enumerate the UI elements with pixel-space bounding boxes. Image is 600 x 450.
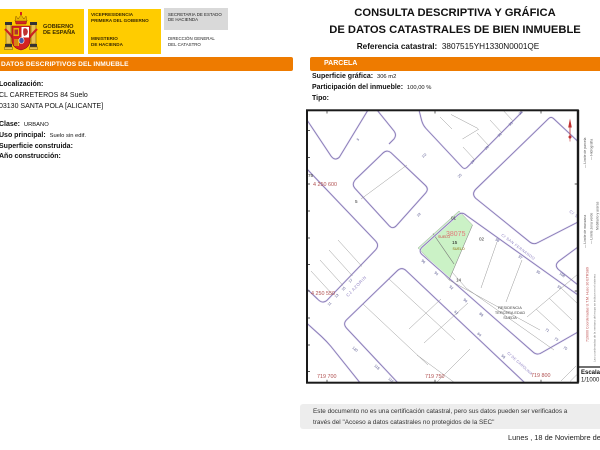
svg-text:— Límite de parcela: — Límite de parcela <box>583 138 587 168</box>
svg-text:1/2: 1/2 <box>421 152 427 158</box>
svg-text:62: 62 <box>453 310 459 316</box>
svg-text:97: 97 <box>517 255 523 261</box>
svg-text:719 750: 719 750 <box>425 374 445 380</box>
svg-text:Mobiliario y aceras: Mobiliario y aceras <box>596 201 600 230</box>
svg-text:19: 19 <box>416 212 422 218</box>
svg-text:4 250 600: 4 250 600 <box>313 182 337 188</box>
svg-text:— Hidrografía: — Hidrografía <box>590 139 594 160</box>
svg-text:15: 15 <box>341 286 347 292</box>
svg-text:75: 75 <box>562 346 568 352</box>
svg-text:— Límite zona verde: — Límite zona verde <box>590 213 594 244</box>
svg-text:15: 15 <box>452 240 458 246</box>
svg-text:SUEDA: SUEDA <box>503 315 517 320</box>
svg-text:71: 71 <box>544 328 550 334</box>
svg-text:95: 95 <box>535 270 541 276</box>
svg-text:719 700: 719 700 <box>317 374 337 380</box>
svg-text:90: 90 <box>462 298 468 304</box>
svg-text:— Límite de manzana: — Límite de manzana <box>583 215 587 248</box>
svg-text:4 250 550: 4 250 550 <box>311 291 335 297</box>
svg-text:01: 01 <box>451 216 457 221</box>
svg-text:02: 02 <box>479 237 485 242</box>
svg-text:92: 92 <box>448 285 454 291</box>
svg-text:93: 93 <box>556 285 562 291</box>
svg-text:75: 75 <box>308 173 314 178</box>
svg-text:C/ DE CAROLINA: C/ DE CAROLINA <box>506 351 533 376</box>
svg-text:88: 88 <box>478 312 484 318</box>
svg-text:1/1000: 1/1000 <box>581 378 600 384</box>
svg-text:11: 11 <box>327 301 332 306</box>
svg-text:73: 73 <box>553 337 559 343</box>
svg-text:96: 96 <box>420 259 426 265</box>
svg-text:118: 118 <box>373 364 380 371</box>
svg-text:17: 17 <box>348 278 354 284</box>
svg-text:5: 5 <box>356 137 360 141</box>
svg-text:14: 14 <box>456 278 462 283</box>
svg-text:98: 98 <box>494 238 500 244</box>
svg-text:120: 120 <box>351 346 358 353</box>
svg-text:SUELO: SUELO <box>438 235 450 239</box>
svg-text:Escala:: Escala: <box>581 370 600 376</box>
svg-text:94: 94 <box>433 271 439 277</box>
svg-text:719000 Coordenadas U.T.M. Huso: 719000 Coordenadas U.T.M. Huso 30 ETRS89 <box>586 267 590 342</box>
svg-text:25: 25 <box>457 173 463 179</box>
svg-text:58: 58 <box>500 354 506 360</box>
svg-text:C/ SA: C/ SA <box>568 209 582 221</box>
svg-text:SUELO: SUELO <box>453 247 465 251</box>
svg-text:719 800: 719 800 <box>531 373 551 379</box>
svg-text:Las coordenadas de la ventana: Las coordenadas de la ventana del mapa s… <box>593 274 597 362</box>
svg-text:108: 108 <box>558 272 565 279</box>
svg-text:5: 5 <box>355 199 358 204</box>
